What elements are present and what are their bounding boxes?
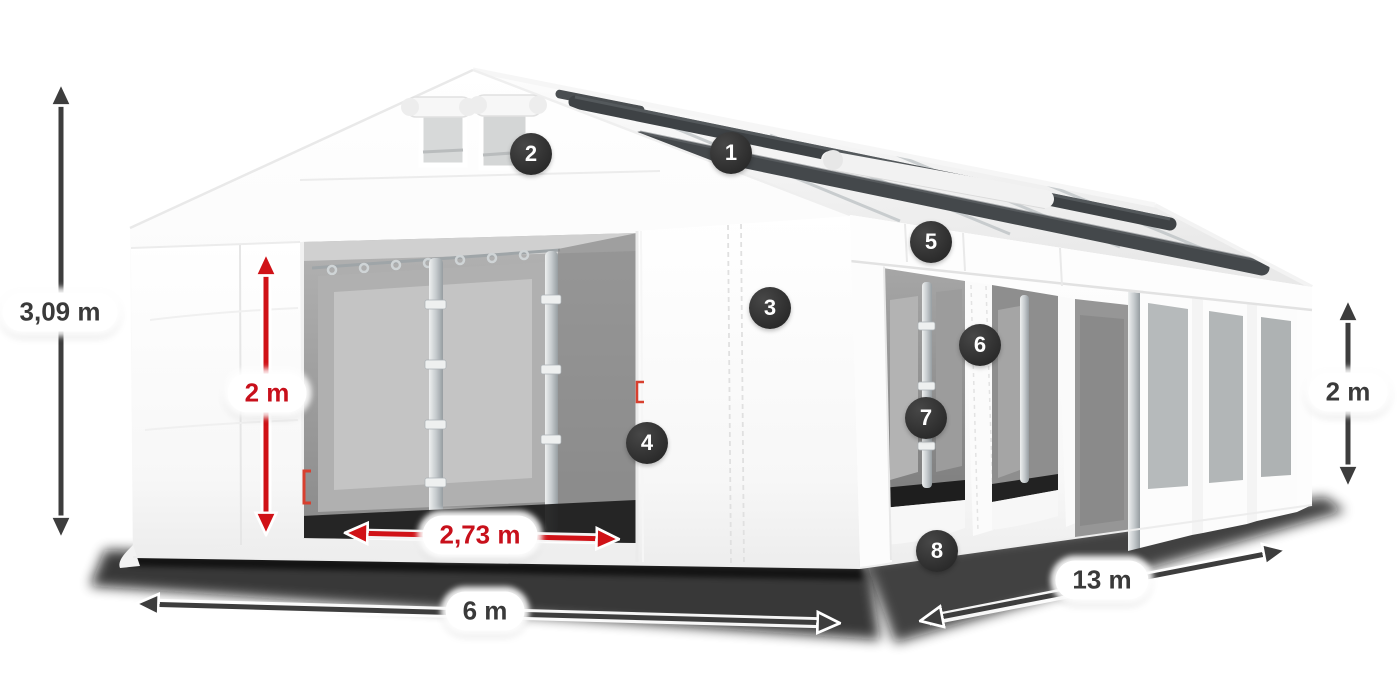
callout-badge-7: 7 (905, 397, 947, 439)
callout-badge-5: 5 (910, 221, 952, 263)
callout-badge-2: 2 (510, 133, 552, 175)
tent-dimension-diagram: 3,09 m 2 m 2,73 m 6 m 13 m 2 m 1 2 3 4 5… (0, 0, 1400, 700)
dimension-label-side-wall-height: 2 m (1309, 373, 1388, 412)
dimension-label-total-height: 3,09 m (3, 293, 118, 332)
callout-badge-8: 8 (916, 530, 958, 572)
dimension-label-entrance-width: 2,73 m (423, 516, 538, 555)
tent-illustration (0, 0, 1400, 700)
front-right-door-leaf (637, 216, 860, 568)
callout-badge-1: 1 (710, 132, 752, 174)
dimension-label-entrance-height: 2 m (228, 374, 307, 413)
entrance-opening (302, 233, 637, 543)
dimension-label-front-width: 6 m (446, 592, 525, 631)
callout-badge-6: 6 (959, 324, 1001, 366)
dimension-label-side-length: 13 m (1055, 561, 1148, 600)
callout-badge-3: 3 (749, 287, 791, 329)
callout-badge-4: 4 (626, 422, 668, 464)
